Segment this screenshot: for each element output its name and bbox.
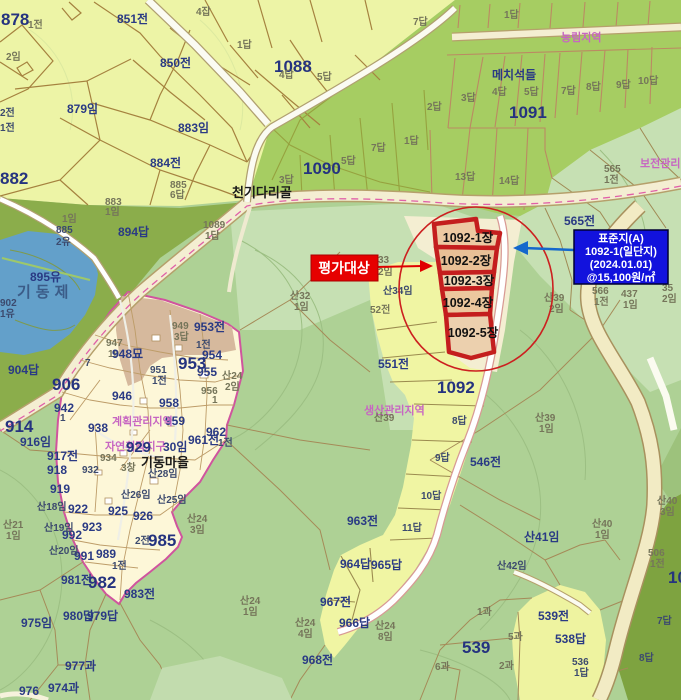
svg-text:1092-4장: 1092-4장: [443, 295, 494, 310]
svg-text:934: 934: [100, 453, 117, 464]
svg-text:506: 506: [648, 548, 665, 559]
svg-text:11답: 11답: [402, 522, 423, 534]
svg-text:949: 949: [172, 321, 189, 332]
svg-text:894답: 894답: [118, 224, 149, 239]
svg-text:1: 1: [212, 395, 218, 406]
svg-text:929: 929: [126, 439, 151, 456]
svg-text:농림지역: 농림지역: [561, 30, 601, 44]
svg-text:산21: 산21: [3, 518, 24, 531]
svg-text:975임: 975임: [21, 616, 52, 630]
svg-text:1답: 1답: [574, 667, 590, 679]
svg-text:산24: 산24: [375, 619, 396, 632]
svg-text:982: 982: [88, 573, 116, 592]
svg-text:산39: 산39: [544, 291, 565, 304]
svg-text:4답: 4답: [279, 69, 295, 81]
svg-text:2유: 2유: [56, 236, 71, 248]
svg-text:표준지(A): 표준지(A): [598, 231, 644, 245]
svg-text:922: 922: [68, 502, 88, 516]
svg-text:968전: 968전: [302, 652, 333, 667]
svg-text:산19임: 산19임: [44, 521, 74, 534]
svg-text:기동마을: 기동마을: [141, 455, 189, 470]
svg-text:2답: 2답: [427, 101, 443, 113]
svg-text:932: 932: [82, 465, 99, 476]
svg-text:1임: 1임: [595, 528, 610, 541]
svg-text:계획관리지역: 계획관리지역: [112, 414, 173, 428]
svg-text:1: 1: [60, 413, 66, 424]
svg-text:8답: 8답: [586, 81, 602, 93]
svg-text:885: 885: [56, 225, 73, 236]
svg-text:1092-1장: 1092-1장: [443, 230, 494, 245]
svg-text:923: 923: [82, 520, 102, 534]
svg-text:1임: 1임: [539, 422, 554, 435]
svg-text:산39: 산39: [374, 411, 395, 424]
svg-text:566: 566: [592, 286, 609, 297]
svg-text:919: 919: [50, 482, 70, 496]
svg-text:4답: 4답: [492, 86, 508, 98]
svg-text:965답: 965답: [371, 557, 402, 572]
svg-text:산24: 산24: [187, 512, 208, 525]
svg-text:966답: 966답: [339, 615, 370, 630]
svg-text:895유: 895유: [30, 270, 61, 284]
svg-text:974과: 974과: [48, 680, 79, 695]
svg-text:산18임: 산18임: [37, 500, 67, 513]
svg-text:1092-2장: 1092-2장: [441, 253, 492, 268]
svg-text:7답: 7답: [657, 615, 673, 627]
svg-text:917전: 917전: [47, 448, 78, 463]
svg-text:산39: 산39: [535, 411, 556, 424]
svg-text:883임: 883임: [178, 121, 209, 135]
svg-text:5답: 5답: [524, 86, 540, 98]
svg-text:52전: 52전: [370, 303, 390, 316]
svg-text:1090: 1090: [303, 159, 341, 178]
svg-text:메치석들: 메치석들: [492, 67, 536, 82]
svg-text:437: 437: [621, 289, 638, 300]
svg-text:882: 882: [0, 169, 28, 188]
svg-text:1전: 1전: [196, 338, 211, 351]
svg-text:5과: 5과: [508, 630, 524, 643]
svg-text:1전: 1전: [594, 295, 609, 308]
svg-text:3답: 3답: [174, 331, 190, 343]
svg-text:1임: 1임: [105, 205, 120, 218]
svg-text:2전: 2전: [0, 106, 15, 119]
svg-text:851전: 851전: [117, 11, 148, 26]
svg-text:546전: 546전: [470, 454, 501, 469]
svg-text:보전관리: 보전관리: [640, 156, 680, 170]
svg-text:946: 946: [112, 389, 132, 403]
svg-text:산40: 산40: [592, 517, 613, 530]
svg-text:2임: 2임: [6, 50, 21, 63]
svg-text:1전: 1전: [650, 557, 665, 570]
svg-text:8임: 8임: [378, 630, 393, 643]
svg-text:1092: 1092: [437, 378, 475, 397]
svg-text:6답: 6답: [170, 189, 186, 201]
svg-text:1임: 1임: [62, 212, 77, 225]
svg-text:3임: 3임: [190, 523, 205, 536]
svg-text:1전: 1전: [218, 436, 233, 449]
svg-text:6과: 6과: [435, 660, 451, 673]
svg-text:967전: 967전: [320, 594, 351, 609]
svg-text:8답: 8답: [452, 415, 468, 427]
svg-text:5답: 5답: [341, 155, 357, 167]
svg-text:983전: 983전: [124, 586, 155, 601]
svg-text:925: 925: [108, 504, 128, 518]
svg-text:7답: 7답: [413, 16, 429, 28]
svg-text:879임: 879임: [67, 102, 98, 116]
svg-text:8답: 8답: [639, 652, 655, 664]
svg-text:902: 902: [0, 298, 17, 309]
svg-text:1092-1(일단지): 1092-1(일단지): [585, 244, 657, 258]
svg-text:9답: 9답: [435, 452, 451, 464]
svg-text:산20임: 산20임: [49, 544, 79, 557]
svg-text:1답: 1답: [404, 135, 420, 147]
svg-text:976: 976: [19, 684, 39, 698]
svg-text:(2024.01.01): (2024.01.01): [590, 259, 653, 271]
svg-text:551전: 551전: [378, 356, 409, 371]
svg-text:951: 951: [150, 365, 167, 376]
svg-text:기동제: 기동제: [17, 284, 73, 301]
svg-text:3임: 3임: [660, 505, 675, 518]
svg-text:938: 938: [88, 421, 108, 435]
svg-text:30임: 30임: [163, 440, 187, 454]
svg-text:538답: 538답: [555, 631, 586, 646]
svg-text:산34임: 산34임: [383, 284, 413, 297]
svg-text:963전: 963전: [347, 513, 378, 528]
svg-text:33: 33: [378, 255, 390, 266]
svg-text:10답: 10답: [421, 490, 442, 502]
svg-text:918: 918: [47, 463, 67, 477]
svg-text:1092-3장: 1092-3장: [444, 273, 495, 288]
svg-text:1전: 1전: [152, 374, 167, 387]
svg-text:4임: 4임: [298, 627, 313, 640]
svg-text:948묘: 948묘: [112, 347, 143, 361]
svg-text:1임: 1임: [294, 300, 309, 313]
svg-text:977과: 977과: [65, 658, 96, 673]
svg-text:958: 958: [159, 396, 179, 410]
svg-text:916임: 916임: [20, 435, 51, 449]
svg-text:13답: 13답: [455, 171, 476, 183]
svg-text:953전: 953전: [194, 319, 225, 334]
svg-text:10답: 10답: [638, 75, 659, 87]
svg-text:1091: 1091: [509, 103, 547, 122]
svg-text:2임: 2임: [225, 380, 240, 393]
svg-text:산41임: 산41임: [524, 529, 559, 544]
svg-text:539전: 539전: [538, 608, 569, 623]
svg-text:1089: 1089: [203, 220, 226, 231]
svg-text:1답: 1답: [205, 230, 221, 242]
svg-text:7답: 7답: [561, 85, 577, 97]
svg-text:산24: 산24: [240, 594, 261, 607]
svg-text:2전: 2전: [135, 534, 150, 547]
svg-text:7답: 7답: [371, 142, 387, 154]
svg-text:1임: 1임: [6, 529, 21, 542]
svg-text:906: 906: [52, 375, 80, 394]
svg-text:산26임: 산26임: [121, 488, 151, 501]
svg-text:7: 7: [85, 358, 91, 369]
svg-text:산28임: 산28임: [148, 467, 178, 480]
svg-text:산32: 산32: [290, 289, 311, 302]
svg-text:955: 955: [197, 365, 217, 379]
svg-text:981전: 981전: [61, 572, 92, 587]
svg-text:9답: 9답: [616, 79, 632, 91]
svg-text:985: 985: [148, 531, 176, 550]
svg-text:962: 962: [206, 425, 226, 439]
svg-text:1전: 1전: [0, 121, 15, 134]
svg-text:1답: 1답: [504, 9, 520, 21]
svg-text:2과: 2과: [499, 659, 515, 672]
svg-text:1전: 1전: [112, 559, 127, 572]
svg-text:926: 926: [133, 509, 153, 523]
svg-text:989: 989: [96, 547, 116, 561]
svg-text:904답: 904답: [8, 362, 39, 377]
svg-text:산24: 산24: [295, 616, 316, 629]
svg-text:산40: 산40: [657, 494, 678, 507]
svg-text:산25임: 산25임: [157, 493, 187, 506]
svg-text:565전: 565전: [564, 213, 595, 228]
svg-text:14답: 14답: [499, 175, 520, 187]
svg-text:@15,100원/㎡: @15,100원/㎡: [587, 270, 656, 284]
svg-text:979답: 979답: [87, 608, 118, 623]
svg-text:1전: 1전: [604, 173, 619, 186]
svg-text:5답: 5답: [317, 71, 333, 83]
svg-text:10: 10: [668, 568, 681, 587]
svg-text:2임: 2임: [662, 292, 677, 305]
svg-text:4잡: 4잡: [196, 6, 212, 18]
svg-text:1전: 1전: [28, 18, 43, 31]
svg-text:539: 539: [462, 638, 490, 657]
svg-text:산24: 산24: [222, 369, 243, 382]
svg-text:3창: 3창: [121, 461, 137, 474]
svg-text:1임: 1임: [243, 605, 258, 618]
svg-text:3답: 3답: [461, 92, 477, 104]
svg-text:1답: 1답: [237, 39, 253, 51]
svg-text:878: 878: [1, 10, 29, 29]
svg-text:884전: 884전: [150, 155, 181, 170]
svg-text:1092-5장: 1092-5장: [448, 325, 499, 340]
svg-text:850전: 850전: [160, 55, 191, 70]
svg-text:536: 536: [572, 657, 589, 668]
svg-text:914: 914: [5, 417, 34, 436]
svg-text:평가대상: 평가대상: [318, 260, 370, 276]
svg-text:천기다리골: 천기다리골: [232, 185, 292, 200]
svg-text:1임: 1임: [623, 298, 638, 311]
svg-text:3답: 3답: [279, 174, 295, 186]
svg-text:산42임: 산42임: [497, 559, 527, 572]
svg-text:1유: 1유: [0, 308, 15, 320]
svg-text:1과: 1과: [477, 605, 493, 618]
svg-text:565: 565: [604, 164, 621, 175]
svg-text:964답: 964답: [340, 556, 371, 571]
